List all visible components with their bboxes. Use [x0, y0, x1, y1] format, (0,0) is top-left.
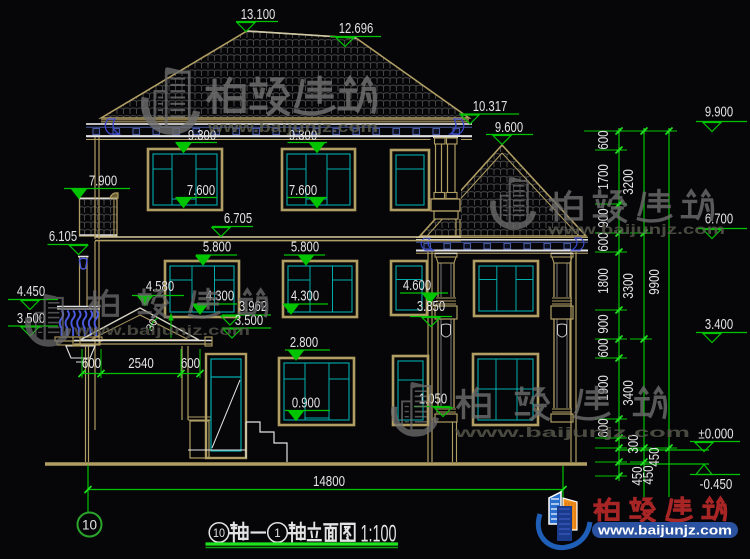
- svg-text:3400: 3400: [621, 380, 637, 406]
- svg-text:www.baijunjz.com: www.baijunjz.com: [207, 119, 378, 136]
- svg-text:1: 1: [274, 528, 280, 540]
- svg-text:www.baijunjz.com: www.baijunjz.com: [547, 221, 725, 237]
- svg-text:2540: 2540: [128, 356, 154, 372]
- svg-text:3200: 3200: [621, 169, 637, 195]
- svg-text:4.600: 4.600: [403, 278, 431, 294]
- svg-text:7.600: 7.600: [289, 183, 317, 199]
- svg-text:4.300: 4.300: [206, 289, 234, 305]
- svg-text:1700: 1700: [596, 164, 612, 190]
- svg-text:9.900: 9.900: [705, 105, 733, 121]
- svg-text:0.900: 0.900: [292, 396, 320, 412]
- svg-text:600: 600: [596, 130, 612, 149]
- svg-text:7.600: 7.600: [187, 183, 215, 199]
- svg-text:600: 600: [82, 356, 101, 372]
- svg-text:10.317: 10.317: [473, 99, 508, 115]
- svg-text:900: 900: [596, 314, 612, 333]
- svg-text:10: 10: [213, 528, 225, 540]
- svg-text:5.800: 5.800: [203, 240, 231, 256]
- svg-text:4.300: 4.300: [291, 289, 319, 305]
- svg-text:450: 450: [630, 466, 646, 485]
- svg-text:600: 600: [181, 356, 200, 372]
- svg-text:2.800: 2.800: [290, 335, 318, 351]
- svg-text:13.100: 13.100: [241, 7, 276, 23]
- svg-text:3300: 3300: [621, 273, 637, 299]
- svg-text:5.800: 5.800: [291, 240, 319, 256]
- svg-text:7.900: 7.900: [89, 174, 117, 190]
- svg-text:www.baijunjz.com: www.baijunjz.com: [72, 323, 250, 338]
- svg-text:6.105: 6.105: [49, 229, 77, 245]
- svg-text:-0.450: -0.450: [700, 477, 733, 493]
- svg-text:9900: 9900: [647, 269, 663, 295]
- svg-text:3.850: 3.850: [417, 299, 445, 315]
- svg-text:1.050: 1.050: [419, 392, 447, 408]
- svg-text:±0.000: ±0.000: [698, 427, 733, 443]
- svg-text:1800: 1800: [596, 268, 612, 294]
- svg-text:9.600: 9.600: [495, 120, 523, 136]
- svg-text:450: 450: [647, 447, 663, 466]
- svg-text:600: 600: [596, 338, 612, 357]
- svg-text:6.705: 6.705: [224, 211, 252, 227]
- svg-text:www.baijunjz.com: www.baijunjz.com: [597, 524, 732, 538]
- svg-text:14800: 14800: [313, 474, 345, 490]
- svg-text:4.450: 4.450: [17, 284, 45, 300]
- svg-text:10: 10: [82, 518, 97, 533]
- svg-text:www.baijunjz.com: www.baijunjz.com: [453, 424, 690, 440]
- svg-text:12.696: 12.696: [339, 21, 374, 37]
- svg-text:3.400: 3.400: [705, 317, 733, 333]
